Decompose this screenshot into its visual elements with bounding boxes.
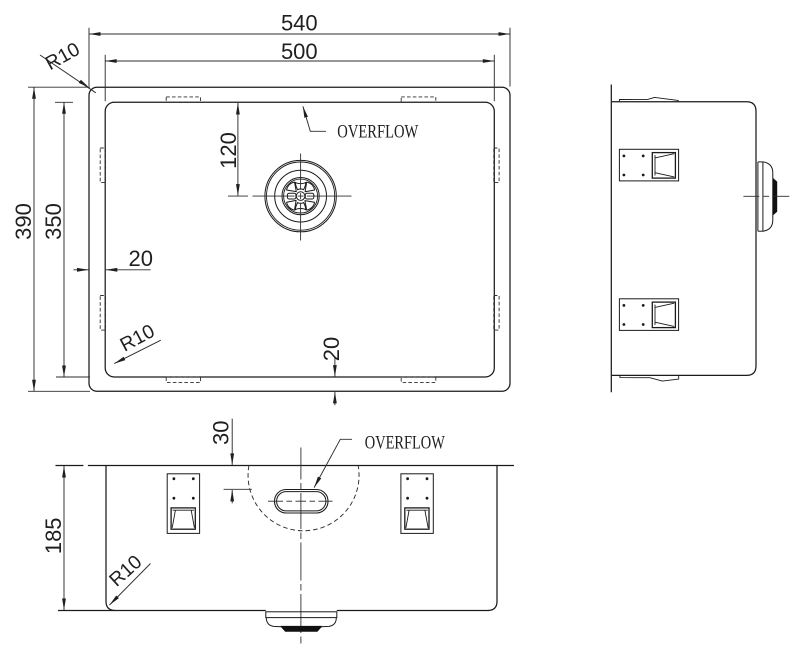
svg-text:OVERFLOW: OVERFLOW (365, 433, 445, 454)
svg-text:500: 500 (281, 39, 318, 64)
svg-text:185: 185 (41, 517, 66, 554)
svg-text:OVERFLOW: OVERFLOW (337, 122, 418, 143)
svg-text:30: 30 (209, 420, 234, 444)
svg-text:390: 390 (11, 203, 36, 240)
svg-text:350: 350 (41, 203, 66, 240)
svg-text:20: 20 (319, 337, 344, 361)
svg-text:540: 540 (281, 11, 318, 36)
svg-text:120: 120 (216, 132, 241, 169)
svg-text:20: 20 (129, 246, 153, 271)
